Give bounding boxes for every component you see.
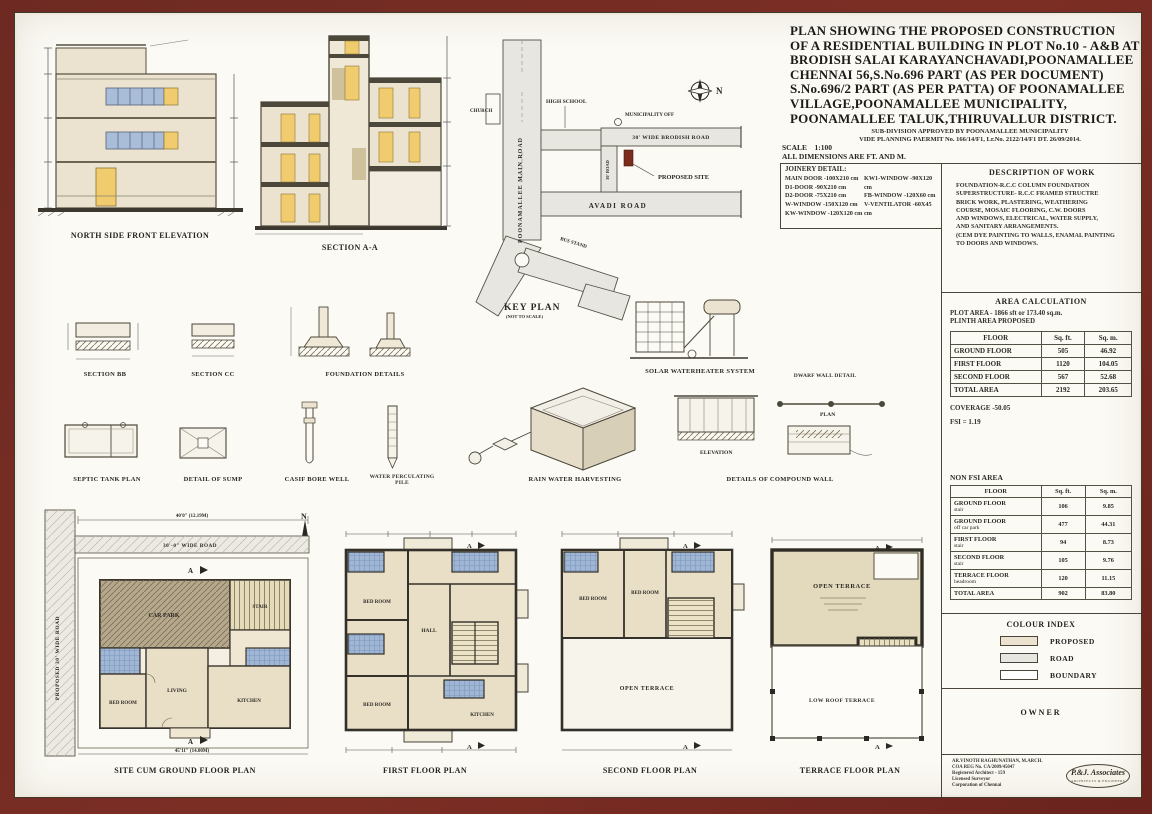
balcony	[620, 538, 668, 550]
branch-spur	[578, 284, 630, 320]
dim-top: 40'0" (12.19M)	[176, 514, 209, 519]
proposed-site-marker	[624, 150, 633, 166]
bathroom	[452, 552, 498, 572]
section-aa-label: SECTION A-A	[290, 243, 410, 252]
joinery-right-column: KW1-WINDOW -90X120 cm FB-WINDOW -120X60 …	[864, 175, 937, 218]
heater-tank	[704, 300, 740, 314]
svg-text:A: A	[188, 738, 193, 746]
solar-waterheater-label: SOLAR WATERHEATER SYSTEM	[615, 368, 785, 375]
ground-floor-plan-drawing: PROPOSED 30' WIDE ROAD 30'-0" WIDE ROAD …	[42, 508, 330, 758]
main-road-label: POONAMALLEE MAIN ROAD	[518, 137, 524, 243]
bedroom-label: BED ROOM	[363, 600, 391, 605]
bedroom-label: BED ROOM	[579, 597, 607, 602]
septic-tank-label: SEPTIC TANK PLAN	[52, 476, 162, 483]
scale-note: SCALE 1:100	[782, 143, 832, 152]
divider	[941, 754, 1141, 755]
section-cc-label: SECTION CC	[168, 371, 258, 378]
description-of-work: DESCRIPTION OF WORK FOUNDATION-R.C.C COL…	[946, 168, 1138, 248]
plinth-area-line: PLINTH AREA PROPOSED	[950, 318, 1132, 326]
section-bb-drawing	[58, 315, 150, 367]
window-band-second-floor	[106, 88, 178, 105]
sump-detail-label: DETAIL OF SUMP	[168, 476, 258, 483]
foundation-details-label: FOUNDATION DETAILS	[300, 371, 430, 378]
side-road-label: PROPOSED 30' WIDE ROAD	[55, 616, 61, 700]
municipality-marker	[615, 119, 622, 126]
section-aa-drawing	[253, 26, 453, 244]
architect-details: AR.VINOTH RAGHUNATHAN, M.ARCH. COA REG N…	[952, 759, 1062, 789]
table-row: TOTAL AREA90283.80	[951, 588, 1132, 600]
plinth-area-table: FLOOR Sq. ft. Sq. m. GROUND FLOOR50546.9…	[950, 331, 1132, 397]
elevation-tag: ELEVATION	[700, 450, 732, 456]
title-line: OF A RESIDENTIAL BUILDING IN PLOT No.10 …	[790, 39, 1140, 54]
terrace-floor-plan-label: TERRACE FLOOR PLAN	[790, 766, 910, 775]
plan-tag: PLAN	[820, 412, 835, 418]
section-marker: A	[188, 567, 193, 575]
open-terrace-label: OPEN TERRACE	[620, 686, 675, 692]
area-calc-heading: AREA CALCULATION	[950, 297, 1132, 306]
church-label: CHURCH	[470, 109, 492, 114]
rainwater-harvesting-label: RAIN WATER HARVESTING	[495, 476, 655, 483]
dwarf-wall-label: DWARF WALL DETAIL	[770, 373, 880, 379]
bathroom	[100, 648, 140, 674]
proposed-site-label: PROPOSED SITE	[658, 174, 709, 181]
top-road-label: 30'-0" WIDE ROAD	[163, 543, 217, 549]
septic-tank-drawing	[55, 415, 150, 470]
stair-tower	[329, 36, 369, 226]
non-fsi-heading: NON FSI AREA	[950, 474, 1132, 482]
first-floor-plan-drawing: BED ROOM HALL BED ROOM KITCHEN A A	[332, 528, 532, 754]
sheet-title: PLAN SHOWING THE PROPOSED CONSTRUCTION O…	[790, 24, 1140, 126]
svg-text:A: A	[875, 744, 880, 751]
table-row: FIRST FLOORstair948.73	[951, 534, 1132, 552]
architect-logo: P.&J. Associates ARCHITECTS & ENGINEERS	[1066, 764, 1130, 788]
svg-text:A: A	[467, 543, 472, 550]
municipality-label: MUNICIPALITY OFF	[625, 113, 674, 118]
north-arrow-icon: N	[686, 76, 730, 106]
bathroom	[348, 552, 384, 572]
key-plan-sublabel: (NOT TO SCALE)	[506, 314, 543, 319]
title-line: BRODISH SALAI KARAYANCHAVADI,POONAMALLEE	[790, 53, 1140, 68]
bathroom	[444, 680, 484, 698]
bedroom-label: BED ROOM	[631, 591, 659, 596]
brodish-road-label: 30' WIDE BRODISH ROAD	[632, 135, 709, 141]
compound-wall-drawing: ELEVATION PLAN	[660, 388, 895, 474]
table-row: SECOND FLOOR56752.68	[951, 370, 1132, 383]
divider	[941, 613, 1141, 614]
kitchen-label: KITCHEN	[237, 699, 261, 704]
coverage-line: COVERAGE -50.05	[950, 404, 1132, 412]
fsi-line: FSI = 1.19	[950, 418, 1132, 426]
dimensions-note: ALL DIMENSIONS ARE FT. AND M.	[782, 152, 906, 161]
bathroom	[246, 648, 290, 666]
description-heading: DESCRIPTION OF WORK	[946, 168, 1138, 177]
plot-area-line: PLOT AREA - 1866 sft or 173.40 sq.m.	[950, 310, 1132, 318]
carpark-label: CAR PARK	[148, 613, 179, 619]
colour-index-item: BOUNDARY	[1000, 670, 1097, 680]
area-calculation-section: AREA CALCULATION PLOT AREA - 1866 sft or…	[950, 297, 1132, 426]
key-plan-label: KEY PLAN	[504, 303, 560, 313]
elevation-label: NORTH SIDE FRONT ELEVATION	[60, 231, 220, 240]
sump-detail-drawing	[168, 420, 243, 468]
table-row: GROUND FLOORstair1069.85	[951, 498, 1132, 516]
foundation-details-drawing	[285, 303, 435, 367]
title-line: CHENNAI 56,S.No.696 PART (AS PER DOCUMEN…	[790, 68, 1140, 83]
solar-waterheater-drawing	[628, 282, 773, 366]
colour-index-item: PROPOSED	[1000, 636, 1095, 646]
divider	[941, 688, 1141, 689]
colour-index-item: ROAD	[1000, 653, 1074, 663]
second-floor-plan-drawing: BED ROOM BED ROOM OPEN TERRACE A A	[548, 528, 748, 754]
colour-index-heading: COLOUR INDEX	[950, 620, 1132, 629]
percolating-pile-drawing	[368, 402, 418, 472]
table-row: SECOND FLOORstair1059.76	[951, 552, 1132, 570]
second-floor-plan-label: SECOND FLOOR PLAN	[585, 766, 715, 775]
bus-stand-label: BUS STAND	[559, 237, 587, 250]
svg-text:A: A	[875, 545, 880, 552]
cross-road-label: 30' ROAD	[605, 160, 610, 180]
bathroom	[348, 634, 384, 654]
school-label: HIGH SCHOOL	[546, 99, 587, 105]
balcony	[516, 664, 528, 692]
open-terrace-label: OPEN TERRACE	[813, 583, 871, 590]
window-band-first-floor	[106, 132, 178, 149]
svg-text:A: A	[683, 543, 688, 550]
table-row: FIRST FLOOR1120104.05	[951, 357, 1132, 370]
boundary-swatch	[1000, 670, 1038, 680]
kitchen-label: KITCHEN	[470, 713, 494, 718]
north-elevation-drawing	[38, 36, 243, 228]
joinery-left-column: MAIN DOOR -100X210 cm D1-DOOR -90X210 cm…	[785, 175, 864, 218]
first-floor-plan-label: FIRST FLOOR PLAN	[365, 766, 485, 775]
joinery-heading: JOINERY DETAIL:	[781, 163, 941, 175]
balcony	[404, 538, 452, 550]
percolating-pile-label: WATER PERCULATING PILE	[352, 474, 452, 486]
section-cc-drawing	[178, 318, 250, 366]
bathroom	[564, 552, 598, 572]
divider	[941, 292, 1141, 293]
bore-well-drawing	[282, 398, 337, 472]
table-row: GROUND FLOOR50546.92	[951, 344, 1132, 357]
title-line: S.No.696/2 PART (AS PER PATTA) OF POONAM…	[790, 82, 1140, 97]
avadi-road-label: AVADI ROAD	[589, 202, 648, 210]
drawing-sheet-page: PLAN SHOWING THE PROPOSED CONSTRUCTION O…	[0, 0, 1152, 814]
dim-bottom: 45'11" (14.00M)	[175, 749, 210, 754]
title-line: POONAMALLEE TALUK,THIRUVALLUR DISTRICT.	[790, 112, 1140, 127]
stair-label: STAIR	[253, 605, 268, 610]
link-road	[541, 130, 603, 150]
bedroom-label: BED ROOM	[363, 703, 391, 708]
headroom-upper	[874, 553, 918, 579]
section-bb-label: SECTION BB	[55, 371, 155, 378]
table-row: TERRACE FLOORheadroom12011.15	[951, 570, 1132, 588]
title-line: VILLAGE,POONAMALLEE MUNICIPALITY,	[790, 97, 1140, 112]
low-roof-terrace-area	[772, 646, 922, 738]
balcony	[516, 590, 528, 618]
ground-floor-plan-label: SITE CUM GROUND FLOOR PLAN	[95, 766, 275, 775]
low-roof-terrace-label: LOW ROOF TERRACE	[809, 698, 875, 704]
owner-heading: OWNER	[950, 708, 1132, 717]
rainwater-harvesting-drawing	[465, 382, 670, 474]
subdivision-note: SUB-DIVISION APPROVED BY POONAMALLEE MUN…	[820, 128, 1120, 144]
ground-floor-door	[96, 168, 116, 206]
living-label: LIVING	[167, 688, 188, 694]
svg-text:N: N	[716, 86, 723, 96]
joinery-details-box: JOINERY DETAIL: MAIN DOOR -100X210 cm D1…	[780, 163, 942, 229]
table-row: GROUND FLOORoff car park47744.31	[951, 516, 1132, 534]
bathroom	[672, 552, 714, 572]
balcony	[732, 584, 744, 610]
title-line: PLAN SHOWING THE PROPOSED CONSTRUCTION	[790, 24, 1140, 39]
roundabout	[515, 253, 529, 267]
non-fsi-section: NON FSI AREA FLOOR Sq. ft. Sq. m. GROUND…	[950, 474, 1132, 600]
table-row: TOTAL AREA2192203.65	[951, 383, 1132, 396]
terrace-floor-plan-drawing: OPEN TERRACE HEAD ROOM LOW ROOF TERRACE …	[762, 534, 938, 752]
compound-wall-label: DETAILS OF COMPOUND WALL	[695, 476, 865, 483]
title-block-column-border	[941, 163, 942, 797]
balcony	[404, 730, 452, 742]
hall-label: HALL	[421, 628, 437, 634]
ground-line	[38, 208, 243, 212]
road-swatch	[1000, 653, 1038, 663]
proposed-swatch	[1000, 636, 1038, 646]
bedroom-label: BED ROOM	[109, 701, 137, 706]
non-fsi-table: FLOOR Sq. ft. Sq. m. GROUND FLOORstair10…	[950, 485, 1132, 600]
